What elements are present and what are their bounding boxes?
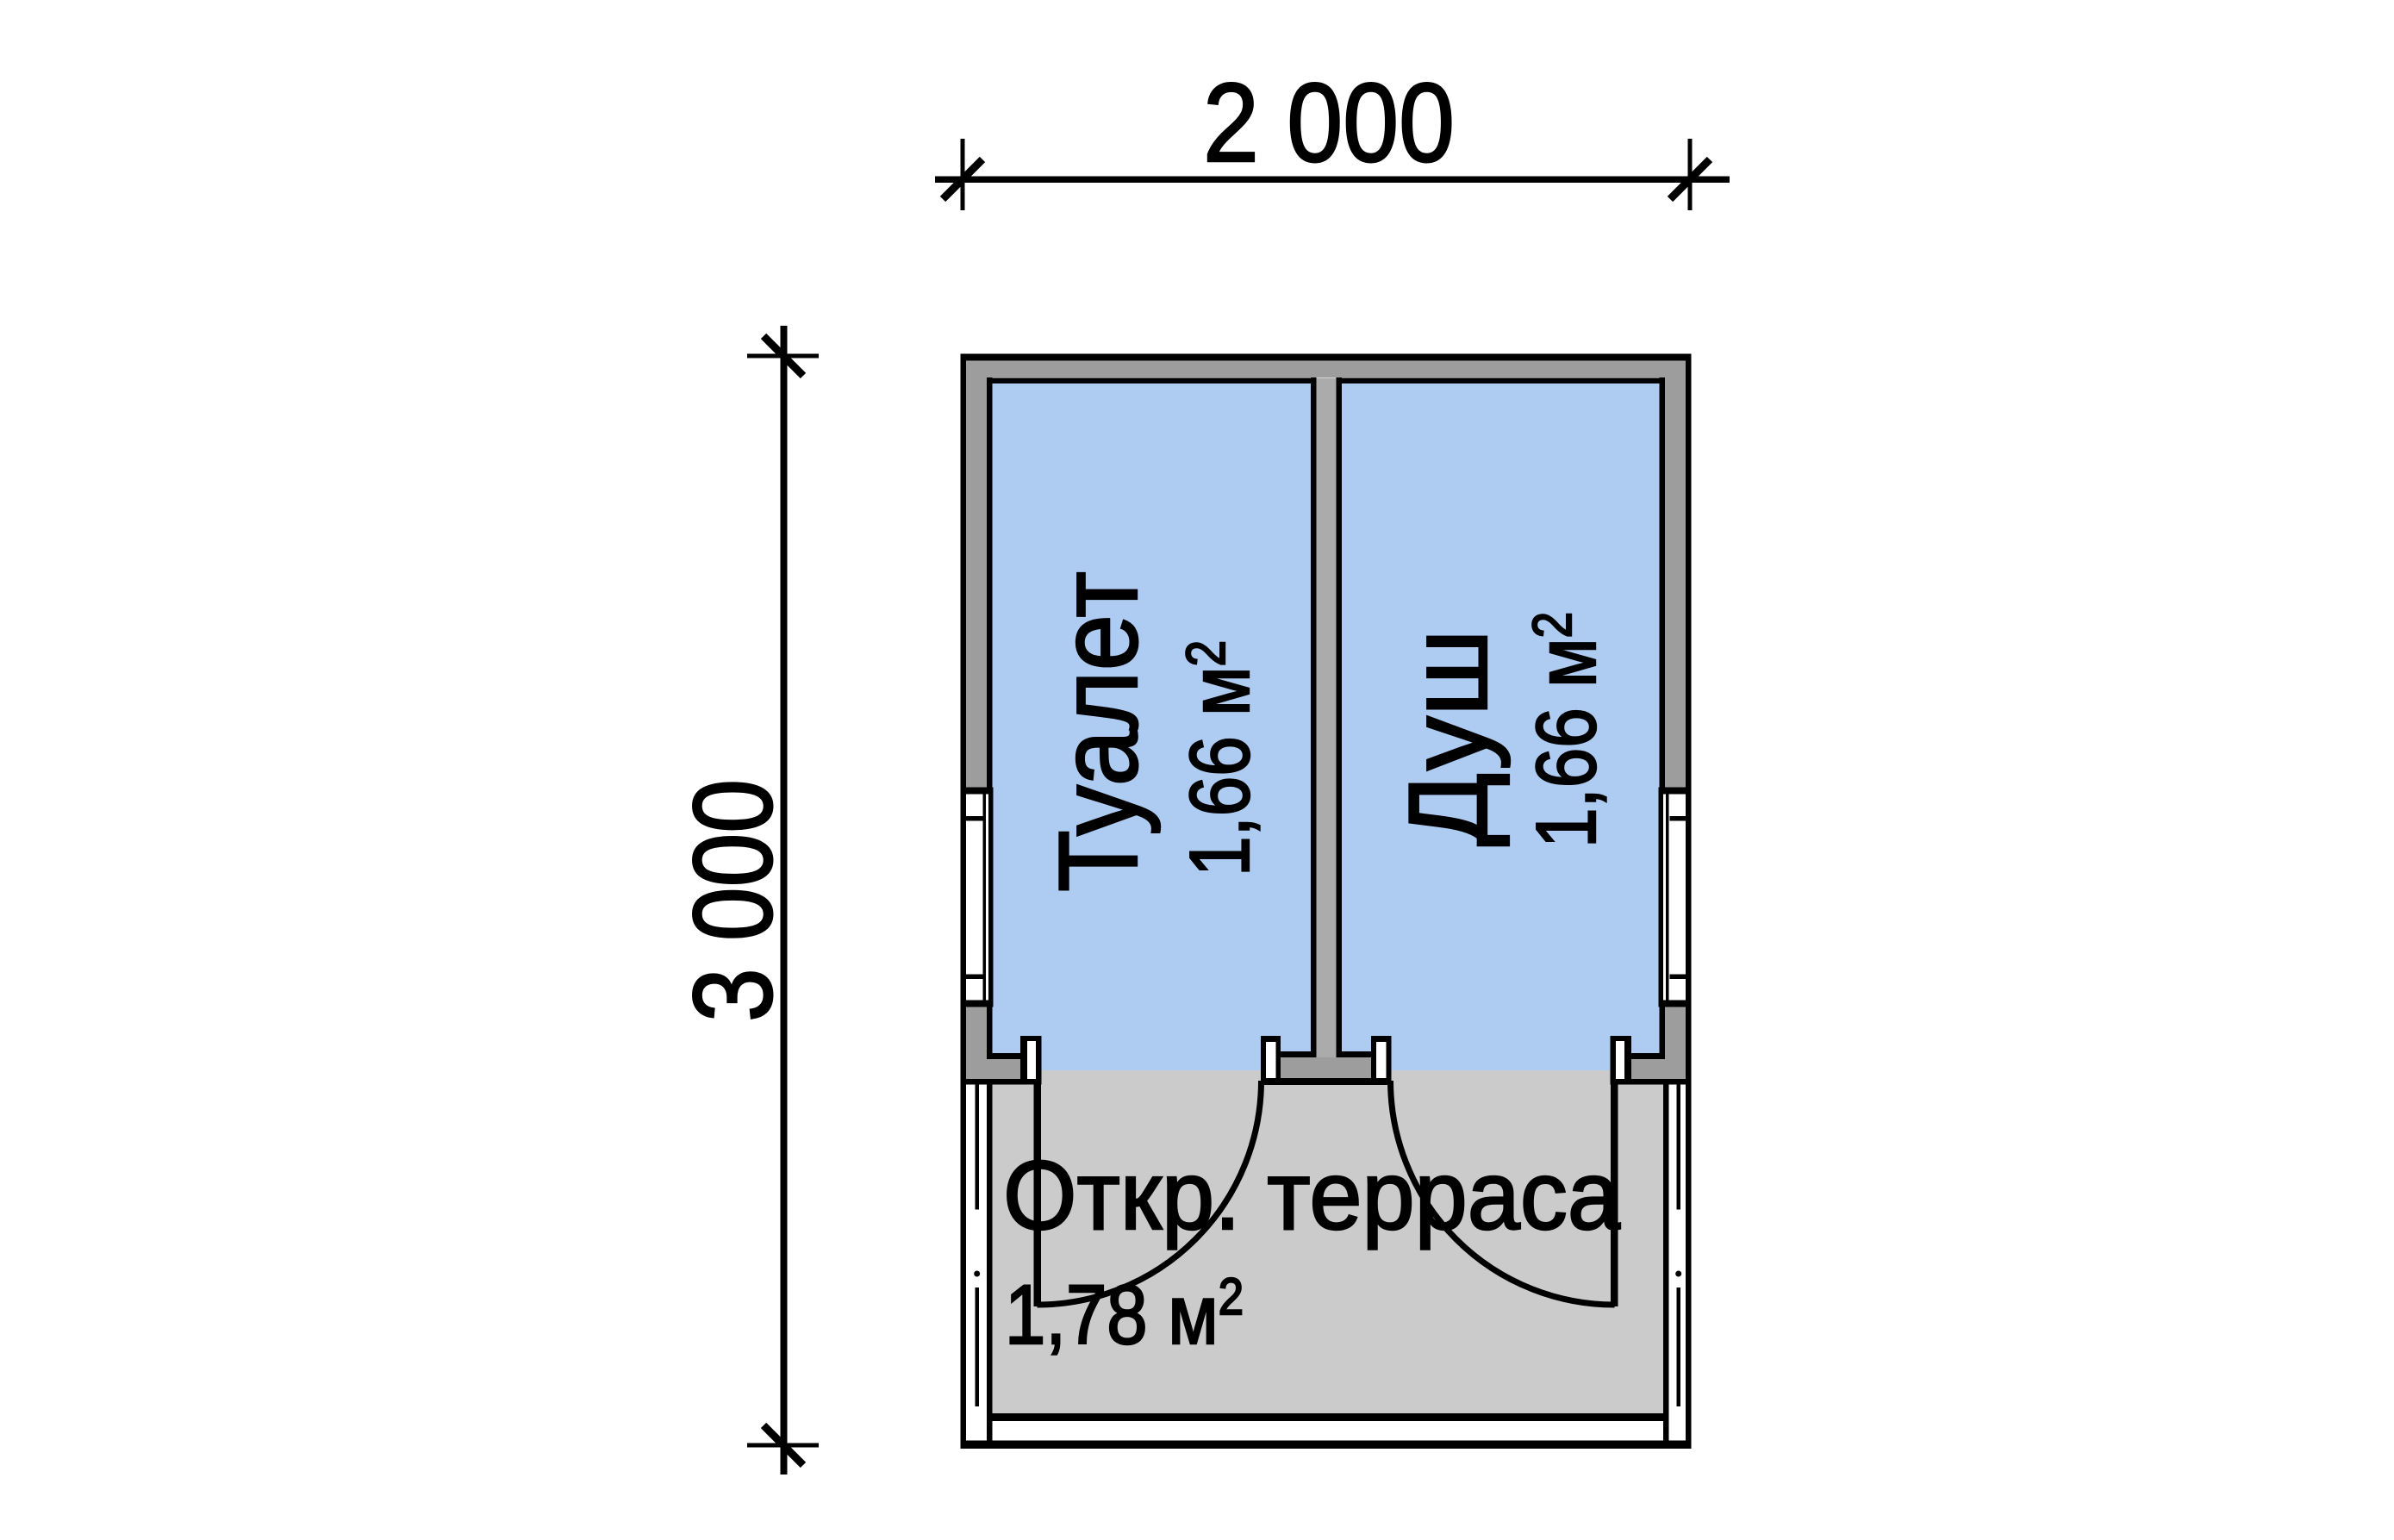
svg-text:Душ: Душ bbox=[1385, 629, 1511, 846]
svg-text:2 000: 2 000 bbox=[1203, 59, 1455, 185]
svg-text:Откр. терраса: Откр. терраса bbox=[1003, 1141, 1620, 1250]
svg-text:3 000: 3 000 bbox=[670, 779, 795, 1022]
svg-text:Туалет: Туалет bbox=[1035, 571, 1161, 892]
svg-text:1,66 м2: 1,66 м2 bbox=[1172, 640, 1267, 876]
svg-text:1,66 м2: 1,66 м2 bbox=[1518, 612, 1613, 848]
svg-text:1,78 м2: 1,78 м2 bbox=[1005, 1268, 1244, 1362]
